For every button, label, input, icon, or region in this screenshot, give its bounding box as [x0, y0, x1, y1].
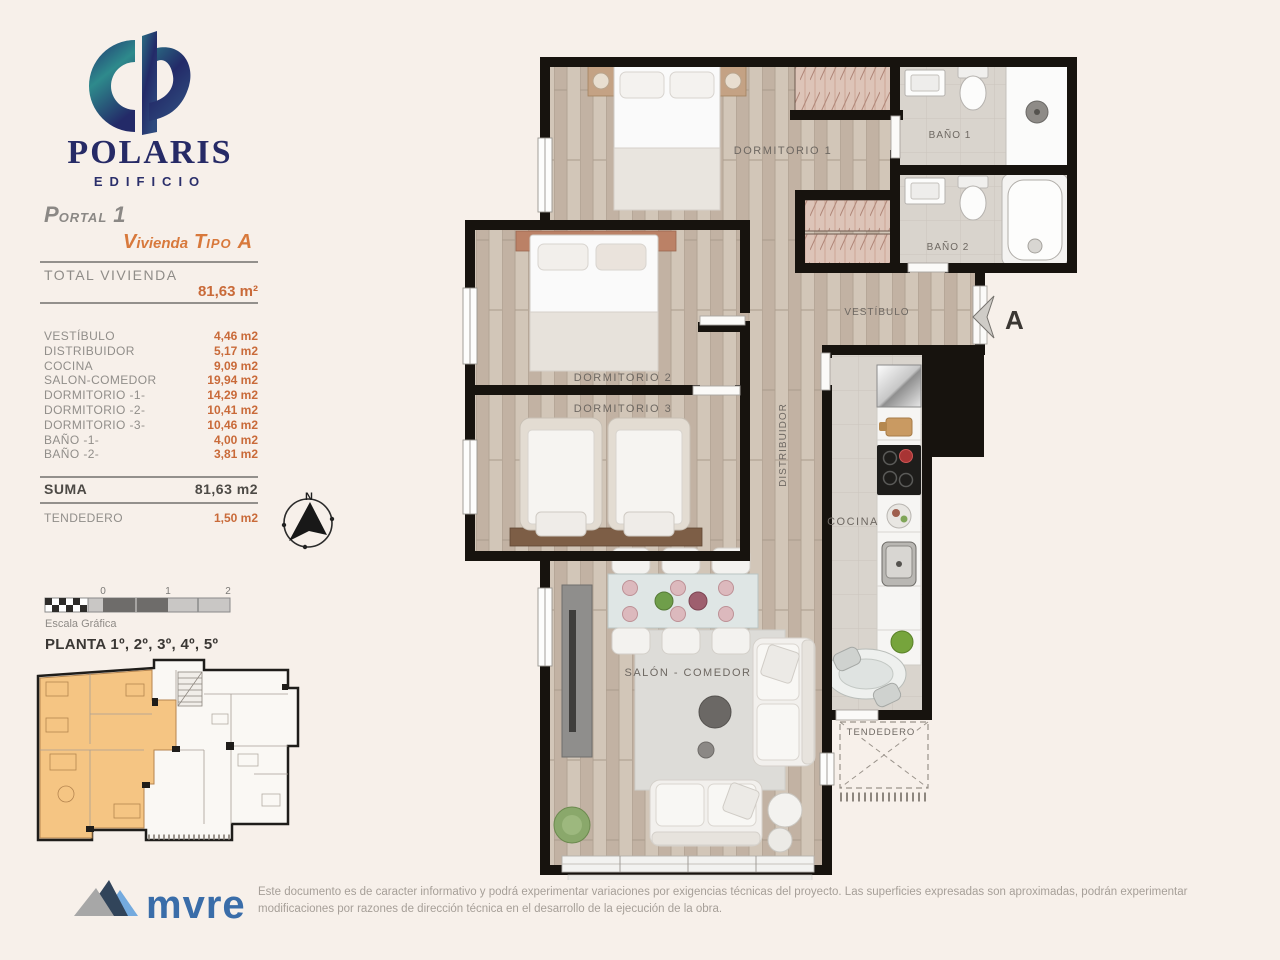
portal-number: 1 [113, 202, 125, 227]
compass-icon: N [276, 488, 342, 554]
list-item: BAÑO -2-3,81 m2 [44, 447, 258, 462]
room-label-bano2: BAÑO 2 [927, 240, 970, 253]
room-label-bano1: BAÑO 1 [929, 128, 972, 141]
portal-title: PORTAL1 [44, 202, 126, 228]
svg-text:1: 1 [165, 586, 171, 597]
room-label-distribuidor: DISTRIBUIDOR [778, 403, 789, 487]
mvre-logo-text: mvre [146, 883, 244, 924]
key-plan-title: PLANTA 1º, 2º, 3º, 4º, 5º [45, 636, 218, 653]
room-label-tendedero: TENDEDERO [847, 727, 916, 738]
key-plan [26, 654, 306, 854]
portal-rest: ORTAL [59, 210, 108, 225]
svg-text:0: 0 [100, 586, 106, 597]
stairwell [178, 672, 202, 706]
list-item: SALON-COMEDOR19,94 m2 [44, 373, 258, 388]
list-item: COCINA9,09 m2 [44, 359, 258, 374]
svg-text:2: 2 [225, 586, 231, 597]
floorplan-sheet: POLARIS EDIFICIO PORTAL1 ViviendaTIPOA T… [0, 0, 1280, 960]
scale-caption: Escala Gráfica [45, 618, 117, 630]
portal-initial: P [44, 202, 59, 227]
room-label-dormitorio2: DORMITORIO 2 [574, 372, 672, 384]
list-item: VESTÍBULO4,46 m2 [44, 329, 258, 344]
brand-subtitle: EDIFICIO [30, 174, 270, 189]
total-value: 81,63 m² [40, 283, 258, 300]
divider [40, 476, 258, 478]
suma-row: SUMA 81,63 m2 [44, 481, 258, 497]
room-label-salon: SALÓN - COMEDOR [624, 666, 751, 679]
mvre-logo: mvre [64, 874, 244, 924]
room-area-list: VESTÍBULO4,46 m2 DISTRIBUIDOR5,17 m2 COC… [44, 329, 258, 462]
room-label-dormitorio3: DORMITORIO 3 [574, 403, 672, 415]
bedroom2-furniture [516, 231, 676, 371]
tendedero-row: TENDEDERO 1,50 m2 [44, 511, 258, 525]
divider [40, 502, 258, 504]
list-item: DORMITORIO -3-10,46 m2 [44, 418, 258, 433]
disclaimer-text: Este documento es de caracter informativ… [258, 884, 1208, 919]
wall-mass [922, 345, 984, 457]
divider [40, 302, 258, 304]
entrance-marker: A [1005, 305, 1024, 335]
list-item: BAÑO -1-4,00 m2 [44, 433, 258, 448]
polaris-logo-icon [85, 24, 195, 138]
brand-name: POLARIS [30, 134, 270, 172]
room-label-vestibulo: VESTÍBULO [844, 305, 909, 318]
room-label-cocina: COCINA [827, 516, 879, 528]
list-item: DORMITORIO -1-14,29 m2 [44, 388, 258, 403]
total-label: TOTAL VIVIENDA [44, 267, 178, 283]
room-label-dormitorio1: DORMITORIO 1 [734, 145, 832, 157]
vivienda-title: ViviendaTIPOA [123, 231, 252, 254]
compass-north-label: N [305, 491, 313, 503]
list-item: DORMITORIO -2-10,41 m2 [44, 403, 258, 418]
scale-bar: 0 1 2 [42, 584, 242, 618]
floor-plan: A DORMITORIO 1 BAÑO 1 BAÑO 2 VESTÍBULO D… [450, 50, 1090, 880]
divider [40, 261, 258, 263]
list-item: DISTRIBUIDOR5,17 m2 [44, 344, 258, 359]
